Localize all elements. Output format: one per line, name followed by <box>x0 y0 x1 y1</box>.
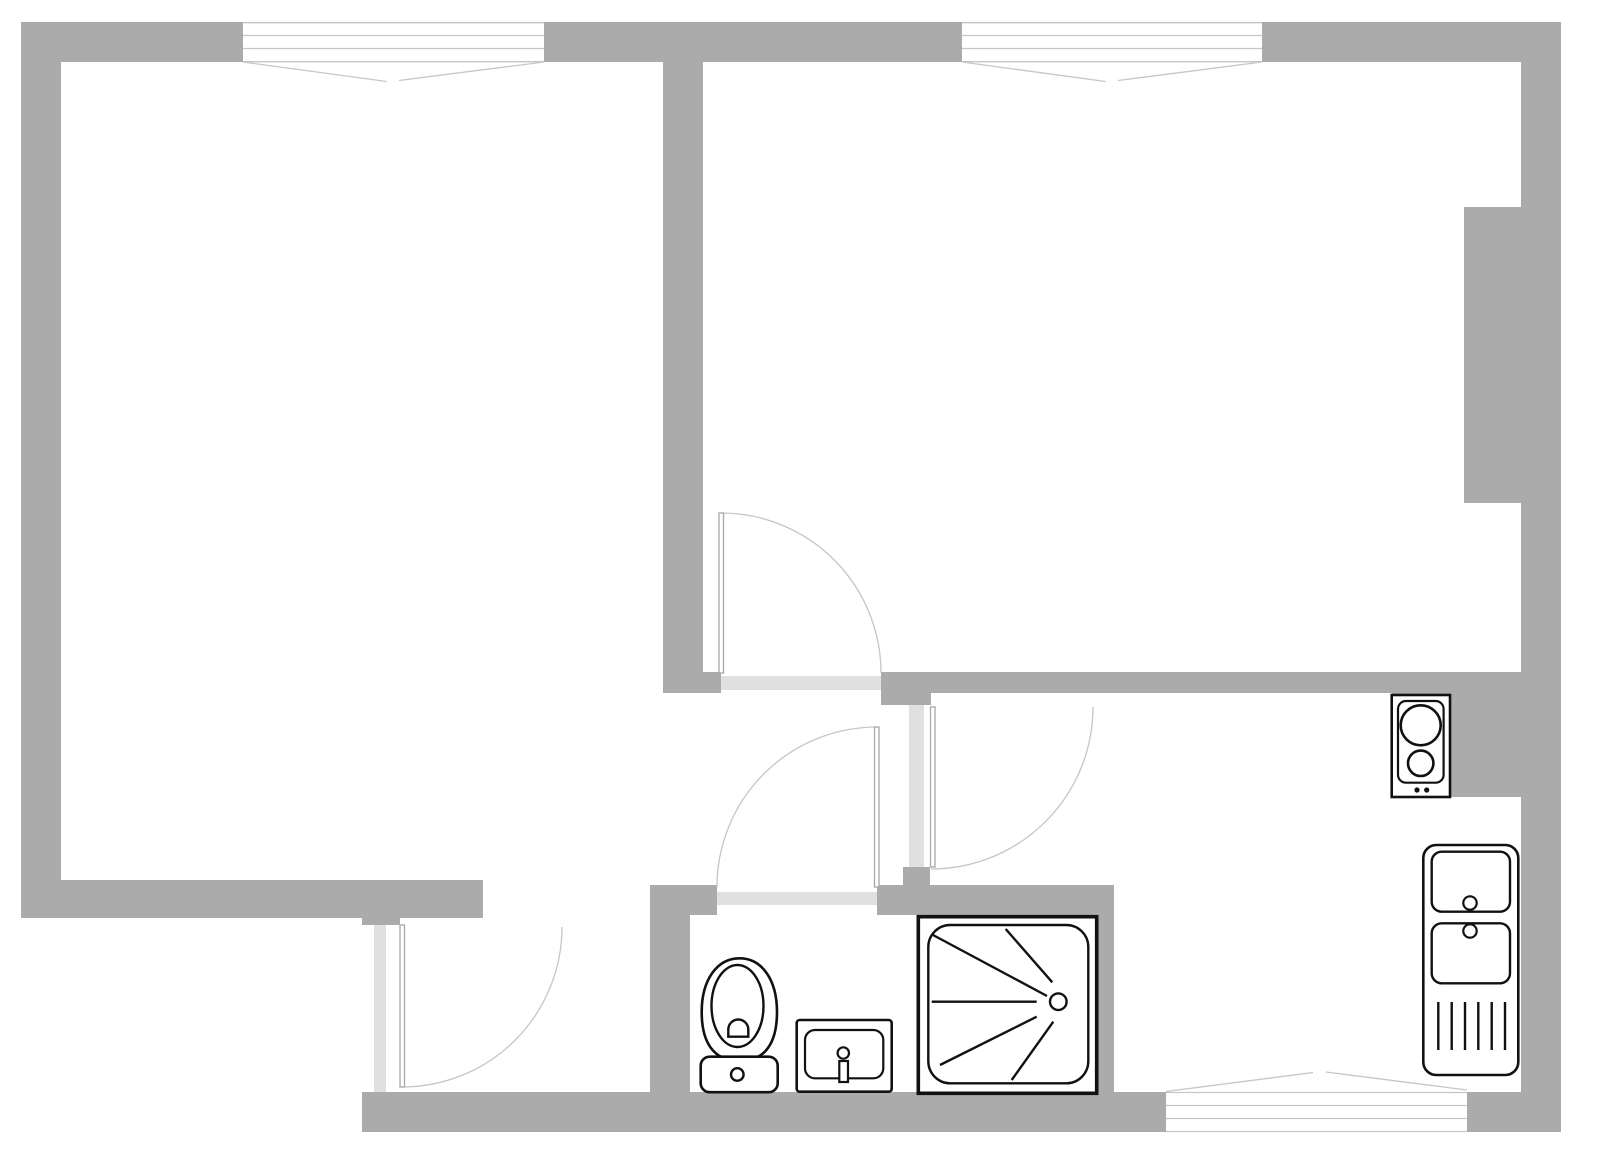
door-leaf-bathroom <box>875 727 880 887</box>
door-arc-kitchen <box>931 707 1093 869</box>
toilet-tank <box>701 1057 778 1093</box>
door-arc-bathroom <box>717 727 877 887</box>
washbasin-faucet <box>838 1047 849 1058</box>
shower-tray <box>918 917 1096 1094</box>
wall-bathroom-kitchen-divider <box>1097 885 1114 1092</box>
wall-right-pier <box>1464 207 1521 503</box>
window-kitchen-sash-right <box>1326 1072 1467 1090</box>
wall-livingroom-bottom <box>21 880 483 918</box>
wall-rooms-divider <box>663 62 703 693</box>
toilet-bowl <box>702 958 777 1061</box>
wall-bottom-right <box>1467 1092 1561 1132</box>
shower-drain <box>1050 993 1067 1010</box>
window-bedroom <box>962 22 1262 62</box>
wall-entry-stub <box>362 880 400 925</box>
window-livingroom-sash-right <box>399 62 544 81</box>
shower-ray-4 <box>940 1017 1037 1065</box>
toilet-flush-button <box>731 1068 744 1081</box>
window-bedroom-sash-right <box>1118 62 1262 81</box>
shower-ray-2 <box>1006 929 1053 982</box>
window-livingroom <box>243 22 544 62</box>
shower-basin <box>928 925 1088 1083</box>
window-bedroom-sash-left <box>962 62 1106 82</box>
wall-bathroom-left <box>650 885 690 1092</box>
kitchen-sink-basin-lower <box>1432 923 1510 983</box>
kitchen-sink-basin-upper <box>1432 852 1510 912</box>
window-kitchen-sash-left <box>1166 1073 1313 1092</box>
wall-kitchen-hall-divider-stub <box>903 867 930 887</box>
doorway-bedroom-threshold <box>721 676 881 690</box>
doorway-bathroom-threshold <box>717 892 877 905</box>
wall-right <box>1521 22 1561 1132</box>
doorway-kitchen-threshold <box>909 705 924 867</box>
kitchen-sink-faucet-upper <box>1463 896 1476 909</box>
shower-ray-5 <box>1012 1022 1054 1080</box>
wall-left <box>21 22 61 918</box>
washbasin-basin <box>805 1030 883 1078</box>
shower-ray-1 <box>933 935 1047 996</box>
window-kitchen <box>1166 1092 1467 1132</box>
wall-kitchen-counter-block <box>1392 672 1521 797</box>
wall-top-middle <box>544 22 962 62</box>
door-leaf-kitchen <box>931 707 936 867</box>
kitchen-sink-faucet-lower <box>1463 924 1476 937</box>
wall-bottom-left <box>362 1092 1166 1132</box>
wall-top-right <box>1262 22 1561 62</box>
floor-plan-drawing-layer <box>0 0 1600 1156</box>
kitchen-sink-counter <box>1423 845 1518 1075</box>
washbasin-faucet-stem <box>839 1061 848 1082</box>
door-leaf-bedroom <box>719 513 724 673</box>
door-arc-entry <box>402 927 562 1087</box>
toilet-bowl-inner <box>712 965 764 1047</box>
door-arc-bedroom <box>721 513 881 673</box>
door-leaf-entry <box>400 925 405 1087</box>
washbasin-counter <box>797 1020 892 1092</box>
floor-plan <box>0 0 1600 1156</box>
doorway-entry-threshold <box>374 925 386 1092</box>
wall-hall-pillar <box>881 672 931 705</box>
toilet-drain <box>728 1020 748 1037</box>
window-livingroom-sash-left <box>243 62 387 82</box>
